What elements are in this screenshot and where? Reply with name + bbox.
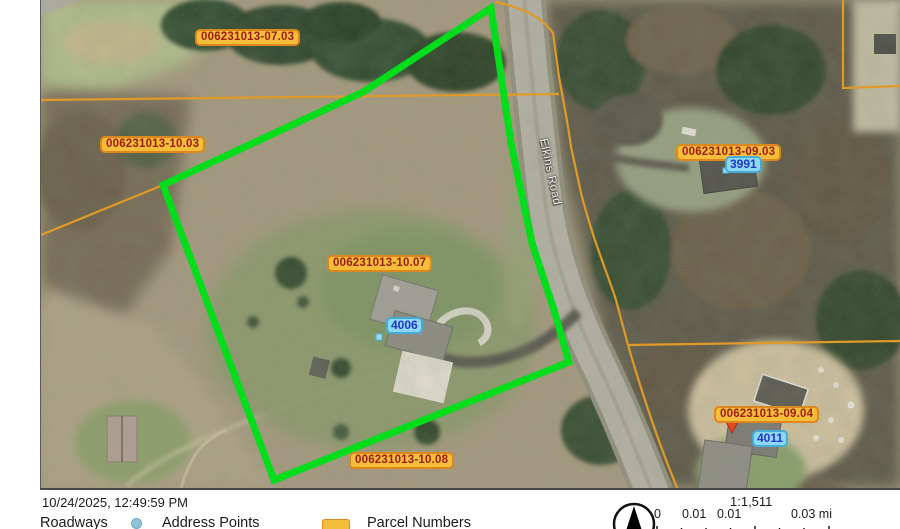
- parcel-label-10-08: 006231013-10.08: [349, 452, 454, 469]
- address-label-4011: 4011: [752, 430, 788, 447]
- scale-tick-001b: 0.01: [717, 507, 741, 521]
- parcel-label-10-03: 006231013-10.03: [100, 136, 205, 153]
- legend-address-points: Address Points: [162, 515, 260, 529]
- address-point-legend-icon: [131, 518, 142, 529]
- scale-tick-003: 0.03 mi: [791, 507, 832, 521]
- export-timestamp: 10/24/2025, 12:49:59 PM: [42, 495, 188, 510]
- scale-tick-0: 0: [654, 507, 661, 521]
- parcel-label-10-07: 006231013-10.07: [327, 255, 432, 272]
- address-label-3991: 3991: [725, 156, 762, 173]
- north-arrow: [610, 497, 658, 529]
- parcel-number-legend-icon: [322, 519, 350, 529]
- gis-map-export-page: 006231013-07.03 006231013-10.03 00623101…: [0, 0, 900, 529]
- parcel-label-09-04: 006231013-09.04: [714, 406, 819, 423]
- legend-roadways: Roadways: [40, 515, 108, 529]
- address-label-4006: 4006: [386, 317, 423, 334]
- address-point-4006[interactable]: [376, 334, 382, 340]
- parcel-label-07-03: 006231013-07.03: [195, 29, 300, 46]
- scale-tick-001a: 0.01: [682, 507, 706, 521]
- scale-bar: [655, 521, 833, 529]
- legend-parcel-numbers: Parcel Numbers: [367, 515, 471, 529]
